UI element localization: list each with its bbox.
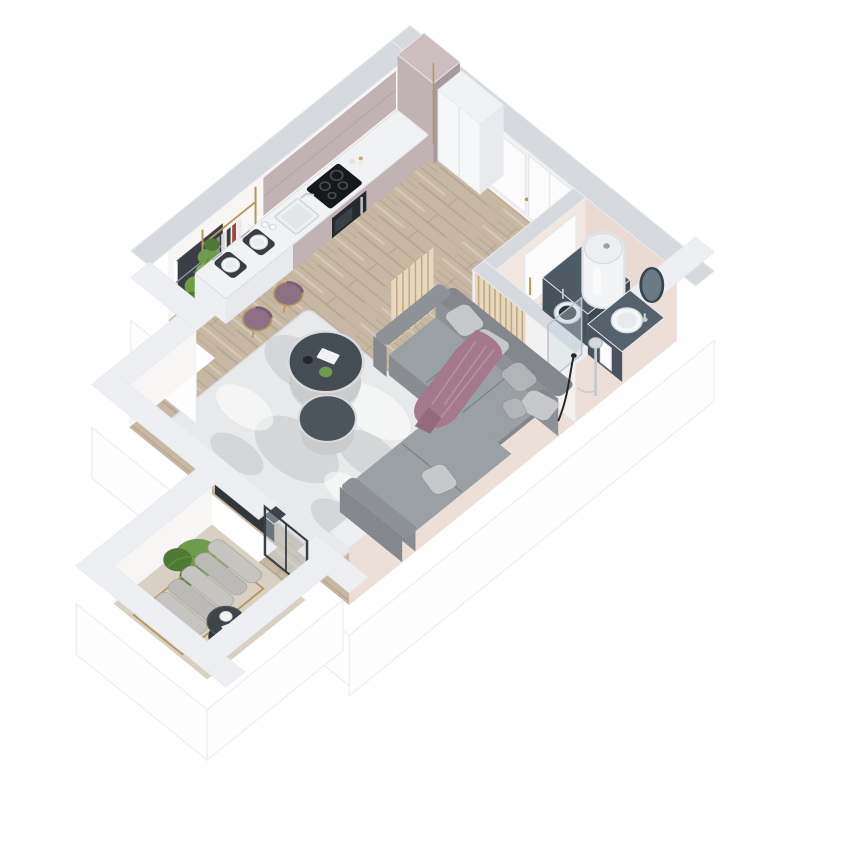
oval-mirror (641, 268, 663, 302)
iso-scene (0, 16, 806, 785)
floor-plan-render (0, 0, 858, 858)
apartment-isometric-svg (0, 0, 858, 858)
